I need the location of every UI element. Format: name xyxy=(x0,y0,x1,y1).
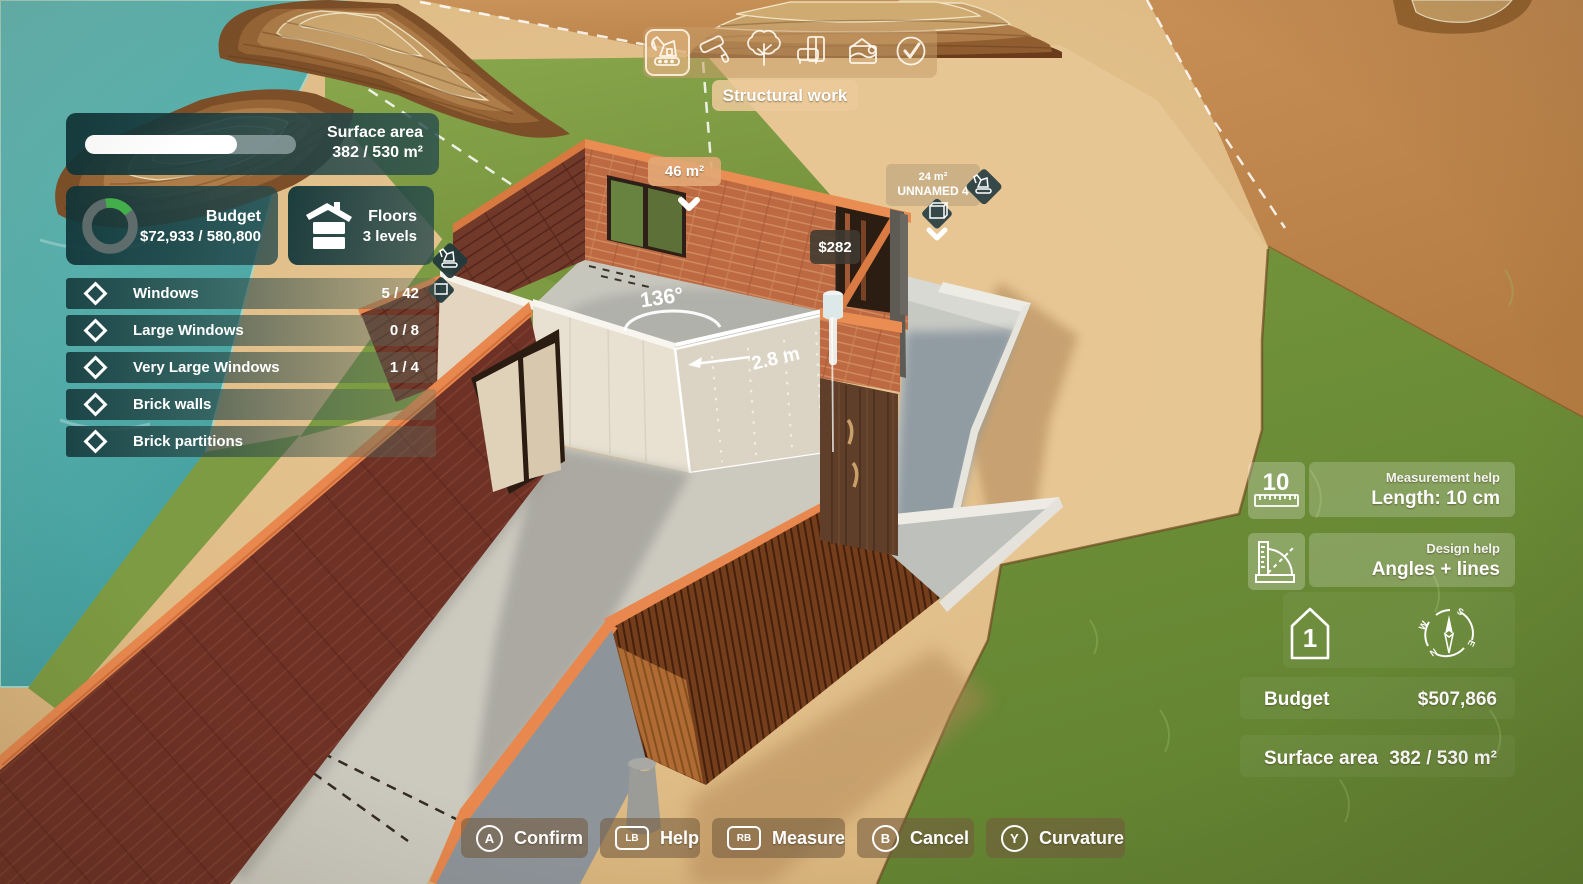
svg-text:10: 10 xyxy=(1263,469,1290,496)
svg-text:N: N xyxy=(1428,647,1439,659)
svg-text:E: E xyxy=(1466,638,1478,648)
svg-text:W: W xyxy=(1417,619,1430,632)
svg-text:1: 1 xyxy=(1303,623,1317,653)
